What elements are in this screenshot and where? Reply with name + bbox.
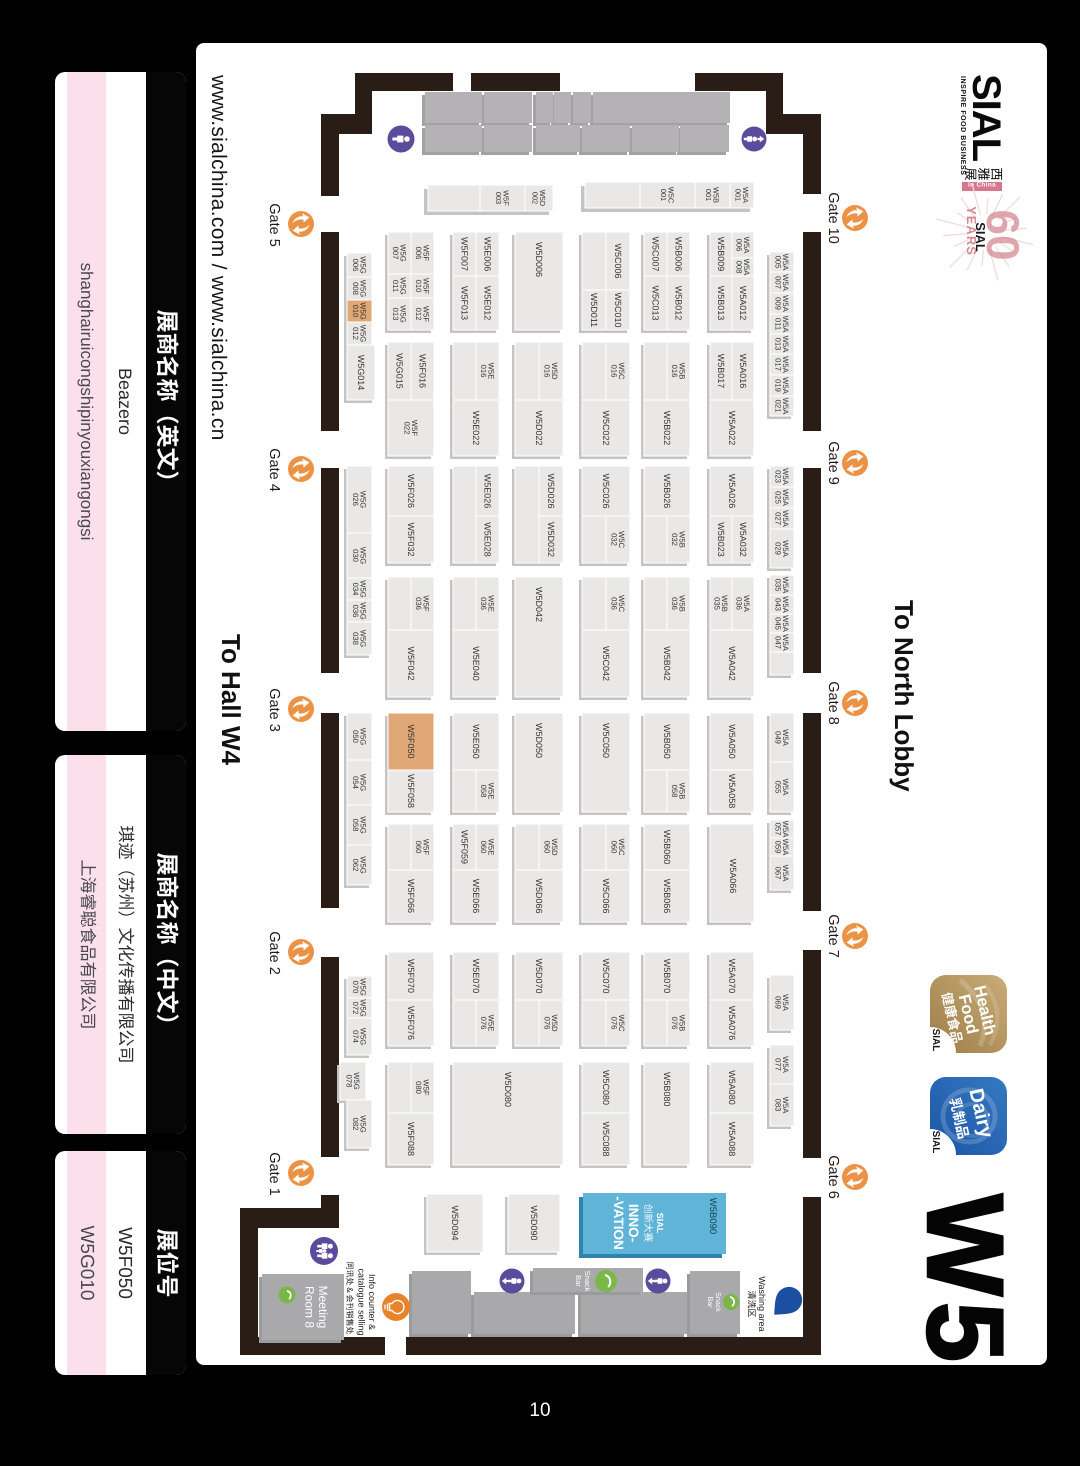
svg-text:W5E: W5E [487, 595, 496, 612]
svg-text:W5G: W5G [359, 325, 368, 343]
svg-text:W5A: W5A [781, 468, 790, 486]
svg-text:060: 060 [609, 841, 618, 854]
svg-text:Snack: Snack [714, 1292, 722, 1312]
svg-text:Gate 4: Gate 4 [266, 448, 282, 492]
svg-text:W5E040: W5E040 [471, 646, 481, 681]
svg-text:049: 049 [773, 731, 782, 744]
svg-text:Snack: Snack [583, 1271, 592, 1292]
svg-text:083: 083 [773, 1099, 782, 1112]
svg-text:W5F: W5F [422, 278, 431, 295]
svg-text:W5A: W5A [781, 489, 790, 507]
svg-text:W5A088: W5A088 [727, 1122, 737, 1157]
svg-text:W5A: W5A [781, 377, 790, 395]
svg-text:W5A012: W5A012 [738, 286, 748, 321]
svg-text:050: 050 [351, 730, 360, 743]
svg-text:057: 057 [773, 823, 782, 836]
svg-text:W5D006: W5D006 [534, 242, 544, 277]
svg-text:W5G: W5G [359, 856, 368, 874]
svg-text:Washing area: Washing area [757, 1276, 767, 1331]
svg-text:045: 045 [773, 617, 782, 630]
svg-text:W5A026: W5A026 [727, 474, 737, 509]
svg-text:W5G: W5G [359, 302, 368, 320]
svg-text:055: 055 [773, 781, 782, 794]
svg-text:036: 036 [479, 597, 488, 610]
svg-text:010: 010 [414, 280, 423, 293]
svg-text:W5B023: W5B023 [716, 522, 726, 557]
svg-text:036: 036 [670, 597, 679, 610]
svg-text:006: 006 [351, 259, 360, 272]
svg-text:078: 078 [344, 1075, 353, 1088]
svg-text:W5A: W5A [781, 1056, 790, 1074]
svg-text:W5A: W5A [781, 398, 790, 416]
svg-text:W5B017: W5B017 [716, 354, 726, 389]
svg-text:008: 008 [734, 261, 743, 274]
svg-text:Gate 9: Gate 9 [825, 441, 841, 485]
svg-text:001: 001 [704, 189, 713, 201]
svg-text:019: 019 [773, 379, 782, 392]
svg-text:W5F076: W5F076 [406, 1006, 416, 1040]
svg-text:032: 032 [670, 533, 679, 546]
svg-text:Bar: Bar [706, 1297, 713, 1309]
svg-text:W5B: W5B [678, 363, 687, 380]
svg-text:SIAL: SIAL [930, 1029, 941, 1052]
svg-text:W5F050: W5F050 [406, 724, 416, 758]
svg-text:060: 060 [414, 841, 423, 854]
svg-text:W5A: W5A [781, 634, 790, 652]
svg-text:W5C026: W5C026 [601, 473, 611, 508]
svg-text:W5C006: W5C006 [613, 243, 623, 278]
svg-text:076: 076 [609, 1017, 618, 1030]
svg-text:036: 036 [351, 605, 360, 618]
svg-text:W5C088: W5C088 [601, 1121, 611, 1156]
svg-text:016: 016 [542, 365, 551, 378]
svg-text:W5A: W5A [781, 615, 790, 633]
svg-text:W5A: W5A [781, 356, 790, 374]
svg-text:W5G: W5G [359, 1028, 368, 1046]
svg-text:W5B: W5B [720, 595, 729, 612]
svg-text:017: 017 [773, 358, 782, 371]
svg-text:W5A050: W5A050 [727, 724, 737, 759]
svg-text:W5D022: W5D022 [534, 410, 544, 445]
svg-text:W5C013: W5C013 [650, 285, 660, 320]
svg-text:W5C: W5C [617, 362, 626, 380]
svg-text:W5G010: W5G010 [76, 1226, 97, 1301]
svg-text:Gate 2: Gate 2 [266, 931, 282, 975]
svg-text:W5F: W5F [422, 306, 431, 323]
svg-text:W5D050: W5D050 [534, 723, 544, 758]
svg-text:W5A: W5A [742, 259, 751, 277]
svg-text:030: 030 [351, 549, 360, 562]
svg-text:026: 026 [351, 493, 360, 506]
svg-text:062: 062 [351, 859, 360, 872]
svg-text:W5G: W5G [359, 1115, 368, 1133]
svg-text:W5A: W5A [781, 729, 790, 747]
svg-text:060: 060 [542, 841, 551, 854]
svg-text:076: 076 [479, 1017, 488, 1030]
svg-text:Gate 10: Gate 10 [825, 192, 841, 244]
svg-text:W5E066: W5E066 [471, 879, 481, 914]
svg-text:W5G: W5G [359, 978, 368, 996]
svg-text:W5A: W5A [742, 595, 751, 613]
svg-text:W5B022: W5B022 [662, 411, 672, 446]
svg-text:054: 054 [351, 776, 360, 790]
svg-text:www.sialchina.com / www.sialch: www.sialchina.com / www.sialchina.cn [207, 74, 230, 441]
svg-text:W5G: W5G [359, 256, 368, 274]
svg-text:W5C022: W5C022 [601, 410, 611, 445]
svg-text:W5G: W5G [359, 816, 368, 834]
svg-text:W5F070: W5F070 [406, 959, 416, 993]
svg-text:027: 027 [773, 512, 782, 525]
svg-text:W5A: W5A [781, 295, 790, 313]
svg-text:Bar: Bar [574, 1275, 583, 1287]
svg-text:W5B006: W5B006 [673, 237, 683, 272]
svg-text:-VATION: -VATION [611, 1196, 626, 1250]
svg-text:W5B: W5B [678, 783, 687, 800]
svg-text:W5F050: W5F050 [114, 1227, 135, 1299]
svg-text:032: 032 [609, 533, 618, 546]
svg-text:012: 012 [351, 327, 360, 340]
svg-text:W5G: W5G [399, 277, 408, 295]
svg-text:029: 029 [773, 542, 782, 555]
svg-text:W5A016: W5A016 [738, 354, 748, 389]
svg-text:W5F032: W5F032 [406, 522, 416, 556]
svg-text:047: 047 [773, 636, 782, 649]
svg-text:W5G: W5G [359, 491, 368, 509]
svg-text:W5C007: W5C007 [650, 236, 660, 271]
svg-text:W5G: W5G [359, 728, 368, 746]
svg-text:W5B: W5B [678, 531, 687, 548]
svg-text:shanghairuicongshipinyouxiango: shanghairuicongshipinyouxiangongsi [77, 263, 96, 541]
svg-text:Gate 3: Gate 3 [266, 688, 282, 732]
svg-text:W5B066: W5B066 [662, 879, 672, 914]
svg-text:008: 008 [351, 282, 360, 295]
svg-text:INNO-: INNO- [626, 1204, 641, 1242]
svg-text:009: 009 [773, 297, 782, 310]
svg-text:W5A066: W5A066 [728, 859, 738, 894]
svg-text:W5A: W5A [781, 596, 790, 614]
svg-text:SIAL: SIAL [973, 222, 988, 252]
svg-text:W5E: W5E [487, 839, 496, 856]
svg-text:SIAL: SIAL [655, 1213, 665, 1234]
svg-text:W5B: W5B [678, 1015, 687, 1032]
svg-text:Gate 6: Gate 6 [825, 1155, 841, 1199]
svg-text:011: 011 [391, 280, 400, 292]
svg-text:W5A: W5A [781, 821, 790, 839]
svg-text:W5C: W5C [617, 838, 626, 856]
svg-text:W5D042: W5D042 [534, 587, 544, 622]
svg-text:W5D: W5D [550, 1014, 559, 1032]
svg-text:036: 036 [414, 597, 423, 610]
svg-text:W5F013: W5F013 [459, 286, 469, 320]
svg-text:W5G: W5G [359, 280, 368, 298]
svg-text:069: 069 [773, 996, 782, 1009]
svg-text:W5D032: W5D032 [546, 522, 556, 557]
svg-text:Gate 8: Gate 8 [825, 681, 841, 725]
svg-text:058: 058 [351, 819, 360, 832]
svg-text:Gate 7: Gate 7 [825, 914, 841, 958]
svg-text:035: 035 [773, 579, 782, 592]
svg-text:013: 013 [391, 308, 400, 321]
svg-text:W5B070: W5B070 [662, 959, 672, 994]
svg-text:W5A: W5A [781, 865, 790, 883]
svg-text:003: 003 [494, 192, 503, 204]
svg-text:058: 058 [670, 785, 679, 798]
svg-text:006: 006 [734, 239, 743, 252]
svg-text:001: 001 [734, 189, 743, 201]
svg-text:W5A: W5A [781, 577, 790, 595]
svg-text:035: 035 [712, 597, 721, 610]
svg-text:W5E: W5E [487, 783, 496, 800]
svg-text:023: 023 [773, 470, 782, 483]
svg-text:To North Lobby: To North Lobby [889, 600, 919, 792]
svg-text:Room 8: Room 8 [303, 1286, 317, 1328]
svg-text:W5B013: W5B013 [716, 286, 726, 321]
svg-text:Gate 1: Gate 1 [266, 1152, 282, 1196]
svg-text:SIAL: SIAL [964, 74, 1008, 162]
svg-text:W5D094: W5D094 [450, 1205, 460, 1240]
svg-text:080: 080 [414, 1081, 423, 1094]
svg-text:W5E012: W5E012 [482, 286, 492, 321]
svg-text:W5D026: W5D026 [546, 473, 556, 508]
svg-text:W5C: W5C [617, 1014, 626, 1032]
svg-text:W5A: W5A [781, 336, 790, 354]
svg-text:W5F: W5F [422, 245, 431, 262]
svg-text:W5F066: W5F066 [406, 879, 416, 913]
svg-text:036: 036 [734, 597, 743, 610]
svg-text:W5F042: W5F042 [406, 646, 416, 680]
svg-text:059: 059 [773, 841, 782, 854]
svg-text:W5C: W5C [617, 531, 626, 549]
svg-text:021: 021 [773, 400, 782, 413]
svg-text:W5F058: W5F058 [406, 774, 416, 808]
svg-text:W5G: W5G [399, 244, 408, 262]
svg-text:W5D: W5D [550, 362, 559, 380]
svg-text:W5D070: W5D070 [534, 958, 544, 993]
svg-text:W5B050: W5B050 [662, 724, 672, 759]
svg-text:W5A076: W5A076 [727, 1006, 737, 1041]
svg-text:034: 034 [351, 583, 360, 597]
svg-text:W5A: W5A [781, 254, 790, 272]
svg-text:W5C070: W5C070 [601, 958, 611, 993]
svg-text:W5E: W5E [487, 363, 496, 380]
svg-text:catalogue selling: catalogue selling [357, 1268, 367, 1335]
svg-text:W5E022: W5E022 [471, 411, 481, 446]
svg-text:W5E026: W5E026 [482, 474, 492, 509]
svg-text:Meeting: Meeting [316, 1286, 330, 1329]
svg-text:082: 082 [351, 1118, 360, 1131]
svg-text:W5C042: W5C042 [601, 646, 611, 681]
svg-text:Gate 5: Gate 5 [266, 203, 282, 247]
svg-text:074: 074 [351, 1030, 360, 1044]
svg-text:016: 016 [670, 365, 679, 378]
svg-text:036: 036 [609, 597, 618, 610]
svg-text:077: 077 [773, 1058, 782, 1071]
svg-text:W5E006: W5E006 [482, 237, 492, 272]
svg-text:001: 001 [659, 189, 668, 201]
svg-text:016: 016 [609, 365, 618, 378]
svg-text:W5F: W5F [422, 1079, 431, 1096]
svg-text:W5F059: W5F059 [459, 830, 469, 864]
svg-text:W5A: W5A [742, 237, 751, 255]
svg-text:W5G: W5G [359, 630, 368, 648]
svg-text:W5G: W5G [359, 602, 368, 620]
svg-text:W5B090: W5B090 [707, 1198, 718, 1234]
svg-text:W5A: W5A [781, 274, 790, 292]
svg-text:W5B: W5B [678, 595, 687, 612]
svg-text:W5G: W5G [352, 1072, 361, 1090]
svg-text:076: 076 [670, 1017, 679, 1030]
svg-text:Beazero: Beazero [115, 368, 135, 435]
svg-text:076: 076 [542, 1017, 551, 1030]
svg-text:W5F016: W5F016 [417, 354, 427, 388]
svg-text:W5F: W5F [422, 839, 431, 856]
svg-text:002: 002 [531, 192, 540, 204]
svg-text:W5G: W5G [359, 999, 368, 1017]
svg-text:022: 022 [402, 422, 411, 435]
svg-text:W5G: W5G [359, 547, 368, 565]
svg-text:W5F088: W5F088 [406, 1122, 416, 1156]
svg-text:W5B042: W5B042 [662, 646, 672, 681]
svg-text:W5A058: W5A058 [727, 774, 737, 809]
svg-text:W5A042: W5A042 [727, 646, 737, 681]
svg-text:W5B012: W5B012 [673, 286, 683, 321]
svg-text:067: 067 [773, 867, 782, 880]
svg-text:W5E028: W5E028 [482, 522, 492, 557]
svg-text:010: 010 [351, 305, 360, 318]
svg-text:INSPIRE FOOD BUSINESS: INSPIRE FOOD BUSINESS [959, 76, 966, 175]
svg-text:072: 072 [351, 1002, 360, 1015]
svg-text:W5C050: W5C050 [601, 723, 611, 758]
svg-text:005: 005 [773, 256, 782, 269]
svg-text:W5A: W5A [781, 839, 790, 857]
svg-text:W5F: W5F [410, 420, 419, 437]
svg-text:W5B026: W5B026 [662, 474, 672, 509]
svg-text:W5D080: W5D080 [503, 1072, 513, 1107]
svg-text:W5G: W5G [399, 305, 408, 323]
svg-text:W5A022: W5A022 [727, 411, 737, 446]
svg-text:W5A: W5A [781, 1097, 790, 1115]
svg-text:W5: W5 [905, 1194, 1026, 1368]
svg-text:070: 070 [351, 981, 360, 994]
svg-text:SIAL: SIAL [930, 1131, 941, 1154]
svg-text:007: 007 [391, 247, 400, 260]
svg-text:W5B060: W5B060 [662, 830, 672, 865]
svg-text:W5G: W5G [359, 580, 368, 598]
svg-text:W5A: W5A [781, 540, 790, 558]
svg-text:W5F007: W5F007 [459, 237, 469, 271]
svg-text:W5D: W5D [550, 838, 559, 856]
svg-text:W5G015: W5G015 [394, 353, 404, 389]
svg-text:W5E070: W5E070 [471, 959, 481, 994]
svg-text:W5D090: W5D090 [529, 1205, 539, 1240]
svg-text:W5A: W5A [781, 316, 790, 334]
svg-text:W5E050: W5E050 [471, 724, 481, 759]
svg-text:W5D066: W5D066 [534, 878, 544, 913]
svg-text:Info counter &: Info counter & [367, 1274, 377, 1330]
svg-text:W5F026: W5F026 [406, 474, 416, 508]
svg-text:W5C080: W5C080 [601, 1070, 611, 1105]
svg-text:006: 006 [414, 247, 423, 260]
svg-text:007: 007 [773, 276, 782, 289]
svg-text:016: 016 [479, 365, 488, 378]
svg-text:W5A: W5A [781, 510, 790, 528]
svg-text:058: 058 [479, 785, 488, 798]
svg-text:W5G014: W5G014 [356, 355, 366, 391]
svg-text:013: 013 [773, 338, 782, 351]
svg-text:W5A080: W5A080 [727, 1070, 737, 1105]
svg-text:W5C: W5C [617, 595, 626, 613]
svg-text:To Hall W4: To Hall W4 [216, 634, 246, 766]
svg-text:W5G: W5G [359, 774, 368, 792]
svg-text:W5A070: W5A070 [727, 959, 737, 994]
svg-text:011: 011 [773, 318, 782, 330]
svg-text:W5A: W5A [781, 779, 790, 797]
svg-text:W5B009: W5B009 [716, 237, 726, 272]
svg-text:060: 060 [479, 841, 488, 854]
svg-text:W5C010: W5C010 [613, 292, 623, 327]
svg-text:W5C066: W5C066 [601, 878, 611, 913]
svg-text:W5F: W5F [422, 595, 431, 612]
svg-text:038: 038 [351, 632, 360, 645]
svg-text:043: 043 [773, 598, 782, 611]
svg-text:W5D011: W5D011 [589, 293, 599, 327]
svg-text:025: 025 [773, 491, 782, 504]
svg-text:W5E: W5E [487, 1015, 496, 1032]
svg-text:W5B080: W5B080 [662, 1072, 672, 1107]
svg-text:012: 012 [414, 308, 423, 321]
svg-text:W5A032: W5A032 [738, 522, 748, 557]
svg-text:W5A: W5A [781, 994, 790, 1012]
